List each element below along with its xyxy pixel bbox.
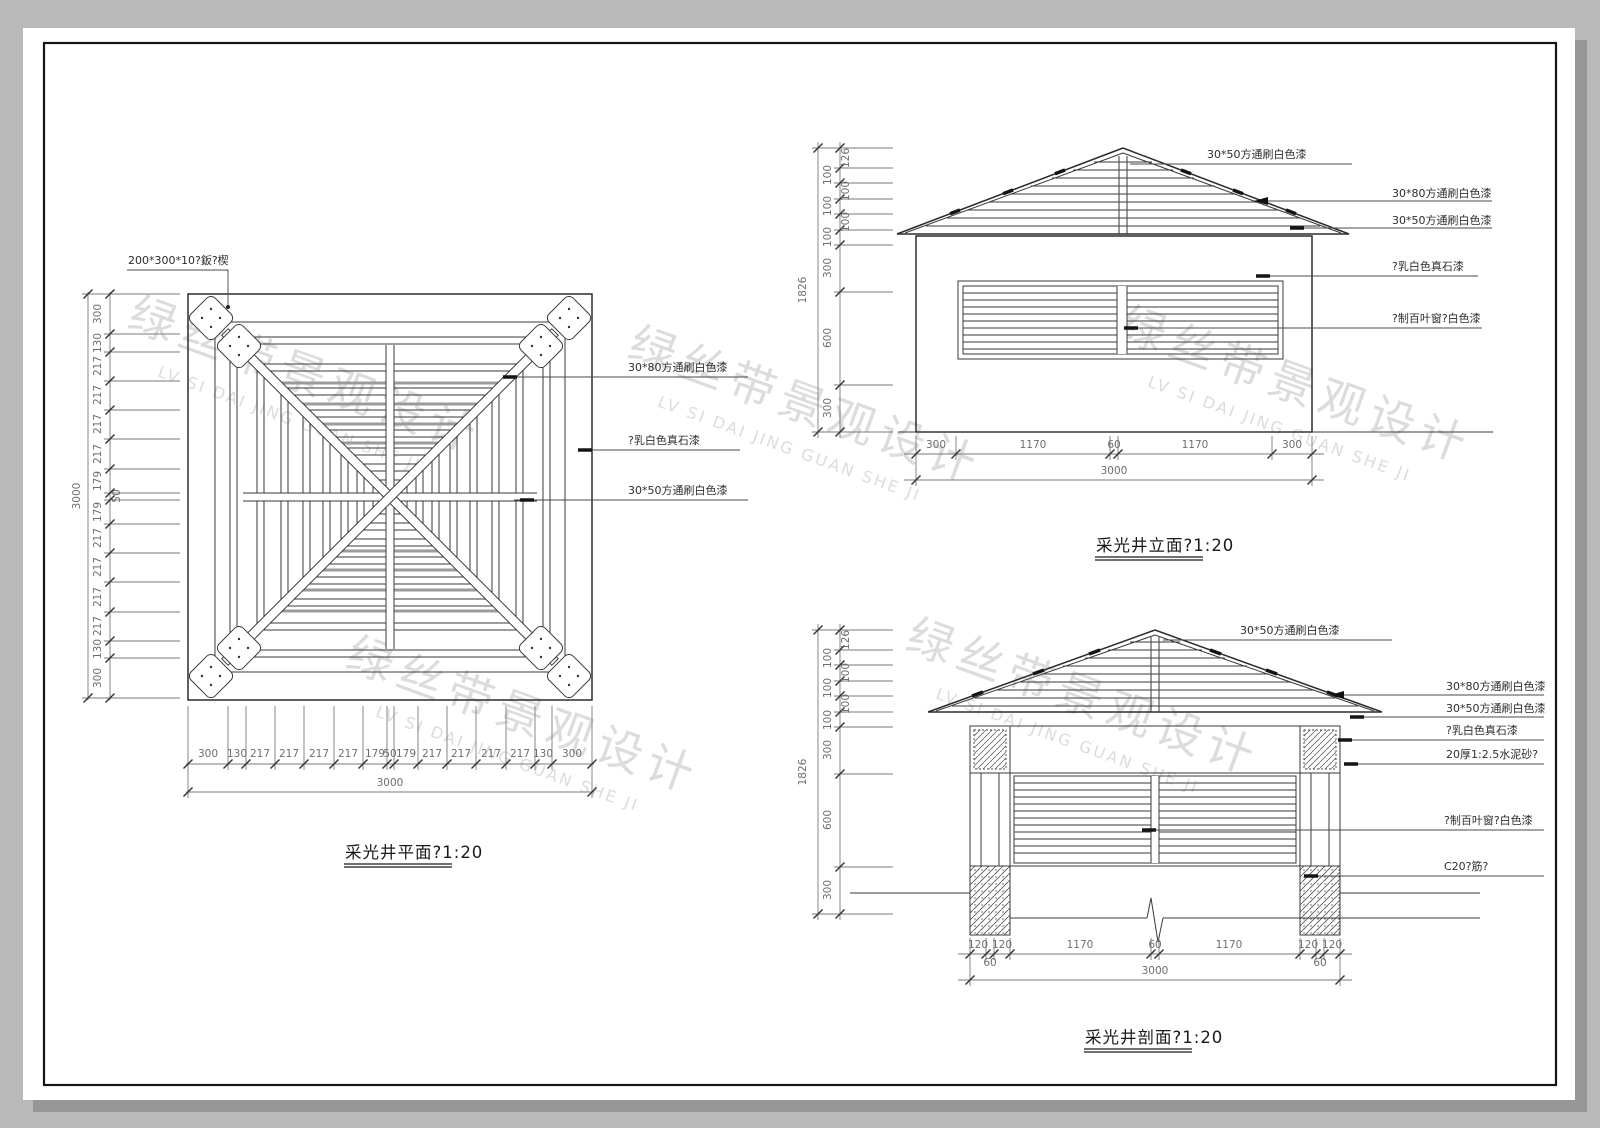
dim-label: 130: [92, 333, 104, 353]
dim-label: 130: [227, 748, 247, 760]
dim-label: 300: [198, 748, 218, 760]
dim-label: 120: [992, 939, 1012, 951]
dim-label: 100: [822, 648, 834, 668]
dim-total-label: 1826: [797, 758, 809, 785]
dim-label: 300: [926, 439, 946, 451]
dim-total-label: 1826: [797, 276, 809, 303]
dim-label: 179: [396, 748, 416, 760]
dim-label: 217: [338, 748, 358, 760]
dim-total-label: 3000: [71, 483, 83, 510]
view-title: 采光井立面?1:20: [1096, 536, 1234, 555]
dim-label: 1170: [1067, 939, 1094, 951]
dim-label: 217: [92, 385, 104, 405]
dim-label: 1170: [1182, 439, 1209, 451]
annotation-label: 30*50方通刷白色漆: [628, 483, 728, 497]
dim-label: 217: [510, 748, 530, 760]
dim-label: 217: [92, 587, 104, 607]
dim-label: 217: [92, 444, 104, 464]
annotation-label: 30*80方通刷白色漆: [628, 360, 728, 374]
dim-label: 179: [365, 748, 385, 760]
dim-sub-label: 60: [983, 957, 996, 969]
dim-label: 217: [92, 557, 104, 577]
dim-label: 126: [840, 630, 852, 650]
dim-label: 100: [840, 663, 852, 683]
dim-label: 130: [533, 748, 553, 760]
dim-label: 217: [422, 748, 442, 760]
dim-label: 300: [822, 398, 834, 418]
dim-label: 50: [383, 748, 396, 760]
dim-label: 100: [822, 678, 834, 698]
view-title: 采光井平面?1:20: [345, 843, 483, 862]
dim-label: 217: [481, 748, 501, 760]
dim-label: 600: [822, 810, 834, 830]
dim-label: 50: [111, 489, 123, 502]
view-title: 采光井剖面?1:20: [1085, 1028, 1223, 1047]
dim-label: 130: [92, 639, 104, 659]
dim-total-label: 3000: [1101, 465, 1128, 477]
drawing-canvas: 绿丝带景观设计 LV SI DAI JING GUAN SHE JI 绿丝带景观…: [0, 0, 1600, 1128]
annotation-label: 30*50方通刷白色漆: [1446, 701, 1546, 715]
dim-label: 300: [822, 740, 834, 760]
dim-sub-label: 60: [1313, 957, 1326, 969]
annotation-label: 200*300*10?鈑?楔: [128, 254, 229, 267]
dim-total-label: 3000: [1142, 965, 1169, 977]
dim-label: 100: [840, 181, 852, 201]
dim-label: 300: [92, 304, 104, 324]
dim-label: 300: [562, 748, 582, 760]
dim-label: 217: [279, 748, 299, 760]
dim-label: 100: [822, 710, 834, 730]
dim-label: 217: [92, 616, 104, 636]
dim-label: 100: [822, 165, 834, 185]
annotation-label: 30*50方通刷白色漆: [1207, 147, 1307, 161]
dim-label: 126: [840, 148, 852, 168]
annotation-label: 20厚1:2.5水泥砂?: [1446, 748, 1538, 761]
cad-sheet-view: 绿丝带景观设计 LV SI DAI JING GUAN SHE JI 绿丝带景观…: [0, 0, 1600, 1128]
dim-label: 100: [840, 694, 852, 714]
annotation-label: ?乳白色真石漆: [628, 433, 700, 447]
annotation-label: 30*50方通刷白色漆: [1392, 213, 1492, 227]
annotation-label: ?乳白色真石漆: [1446, 723, 1518, 737]
annotation-label: 30*50方通刷白色漆: [1240, 623, 1340, 637]
dim-label: 120: [968, 939, 988, 951]
dim-total-label: 3000: [377, 777, 404, 789]
dim-label: 60: [1148, 939, 1161, 951]
dim-label: 300: [1282, 439, 1302, 451]
dim-label: 217: [451, 748, 471, 760]
dim-label: 300: [92, 668, 104, 688]
paper-sheet: [23, 28, 1575, 1100]
dim-label: 217: [92, 414, 104, 434]
dim-label: 179: [92, 502, 104, 522]
dim-label: 300: [822, 258, 834, 278]
dim-label: 600: [822, 328, 834, 348]
dim-label: 179: [92, 471, 104, 491]
dim-label: 120: [1298, 939, 1318, 951]
dim-label: 120: [1322, 939, 1342, 951]
dim-label: 217: [250, 748, 270, 760]
dim-label: 100: [822, 227, 834, 247]
dim-label: 217: [309, 748, 329, 760]
annotation-label: ?制百叶窗?白色漆: [1444, 813, 1533, 827]
annotation-label: 30*80方通刷白色漆: [1446, 679, 1546, 693]
plan-drawing: [187, 294, 593, 700]
dim-label: 217: [92, 356, 104, 376]
dim-label: 60: [1107, 439, 1120, 451]
dim-label: 100: [822, 196, 834, 216]
annotation-label: ?制百叶窗?白色漆: [1392, 311, 1481, 325]
dim-label: 300: [822, 880, 834, 900]
annotation-label: C20?筋?: [1444, 859, 1489, 873]
dim-label: 217: [92, 528, 104, 548]
dim-label: 1170: [1020, 439, 1047, 451]
dim-label: 100: [840, 212, 852, 232]
annotation-label: ?乳白色真石漆: [1392, 259, 1464, 273]
dim-label: 1170: [1216, 939, 1243, 951]
annotation-label: 30*80方通刷白色漆: [1392, 186, 1492, 200]
